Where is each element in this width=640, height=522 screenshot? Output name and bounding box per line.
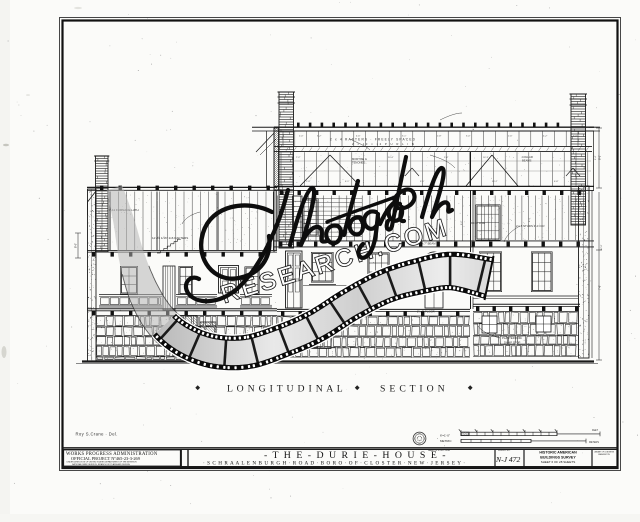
svg-text:TENONED: TENONED xyxy=(352,161,365,165)
svg-text:2'-6": 2'-6" xyxy=(508,136,513,138)
svg-text:FEET: FEET xyxy=(592,429,599,432)
svg-text:5'-0": 5'-0" xyxy=(466,136,471,138)
svg-text:SHEET 6 OF 28 SHEETS: SHEET 6 OF 28 SHEETS xyxy=(541,460,575,464)
svg-text:METRIC: METRIC xyxy=(440,439,452,443)
svg-text:5'-2": 5'-2" xyxy=(317,136,322,138)
svg-text:2'-9": 2'-9" xyxy=(306,181,311,183)
svg-text:10'-2": 10'-2" xyxy=(492,181,498,183)
svg-text:7'-6": 7'-6" xyxy=(598,285,602,290)
svg-text:8'-0": 8'-0" xyxy=(409,215,411,220)
svg-text:2 x 4 RAFTERS · FREELY SPACE: 2 x 4 RAFTERS · FREELY SPACED xyxy=(330,138,416,142)
svg-text:4'-7": 4'-7" xyxy=(473,125,475,130)
svg-text:16'-3": 16'-3" xyxy=(483,157,489,159)
svg-text:2'-8": 2'-8" xyxy=(437,136,442,138)
svg-text:HISTORIC AMERICAN: HISTORIC AMERICAN xyxy=(539,451,577,455)
svg-text:COLLAR: COLLAR xyxy=(522,155,533,159)
svg-text:12'-6": 12'-6" xyxy=(601,244,603,250)
svg-text:S E C T I O N: S E C T I O N xyxy=(380,383,445,394)
svg-text:WASHINGTON: WASHINGTON xyxy=(598,453,610,456)
svg-text:DAMP STOP: DAMP STOP xyxy=(504,341,521,345)
svg-text:ROOF LINE: ROOF LINE xyxy=(470,221,485,225)
svg-text:6'-4": 6'-4" xyxy=(595,155,597,160)
svg-text:4'-2": 4'-2" xyxy=(543,136,548,138)
svg-text:2'-4": 2'-4" xyxy=(444,157,449,159)
svg-text:3'-5": 3'-5" xyxy=(420,181,425,183)
svg-text:6'=1'-0": 6'=1'-0" xyxy=(440,434,450,438)
svg-text:2"x 7" FLOOR: 2"x 7" FLOOR xyxy=(417,310,435,314)
svg-text:9'-2": 9'-2" xyxy=(461,220,463,225)
svg-text:11'-26 1/16" 2x6 RAFTERS: 11'-26 1/16" 2x6 RAFTERS xyxy=(152,236,188,240)
svg-text:BEAMS: BEAMS xyxy=(522,159,532,163)
svg-text:L O N G I T U D I N A L: L O N G I T U D I N A L xyxy=(227,383,343,394)
svg-text:MORTISE &: MORTISE & xyxy=(352,157,367,161)
svg-text:SURVEY NO.: SURVEY NO. xyxy=(498,450,511,452)
svg-text:7'-2": 7'-2" xyxy=(296,157,301,159)
svg-text:LIBRARY OF CONGRESS: LIBRARY OF CONGRESS xyxy=(594,450,615,453)
svg-text:PLASTER FOR: PLASTER FOR xyxy=(502,336,521,340)
svg-text:N-J 472: N-J 472 xyxy=(495,455,520,464)
svg-text:- T H E - D U R I E - H O U S: - T H E - D U R I E - H O U S E - xyxy=(264,450,447,461)
svg-text:· S C H R A A L E N B U R G H: · S C H R A A L E N B U R G H · R O A D … xyxy=(203,460,466,466)
svg-text:2 x 8 STUDS 3'-0 O.C.: 2 x 8 STUDS 3'-0 O.C. xyxy=(516,224,545,228)
svg-text:6'-8": 6'-8" xyxy=(554,181,559,183)
svg-text:2 × 10 × 12 P U R L I N: 2 × 10 × 12 P U R L I N xyxy=(352,142,415,146)
svg-text:8'-0": 8'-0" xyxy=(74,243,78,248)
svg-text:2'-0": 2'-0" xyxy=(299,136,304,138)
svg-text:6'-1": 6'-1" xyxy=(345,181,350,183)
svg-text:METERS: METERS xyxy=(589,441,599,444)
svg-text:8'-6": 8'-6" xyxy=(284,213,286,218)
svg-text:NATIONAL PARK SERVICE, BRANCH: NATIONAL PARK SERVICE, BRANCH OF PLANS A… xyxy=(72,463,130,466)
svg-text:8'-1": 8'-1" xyxy=(598,155,602,160)
svg-text:Roy S.Crane · Del.: Roy S.Crane · Del. xyxy=(76,432,118,437)
svg-text:BUILDINGS SURVEY: BUILDINGS SURVEY xyxy=(540,455,576,459)
svg-text:20'-6": 20'-6" xyxy=(388,157,394,159)
svg-text:OFFICIAL PROJECT Nº465-23-3-: OFFICIAL PROJECT Nº465-23-3-269 xyxy=(71,456,141,461)
